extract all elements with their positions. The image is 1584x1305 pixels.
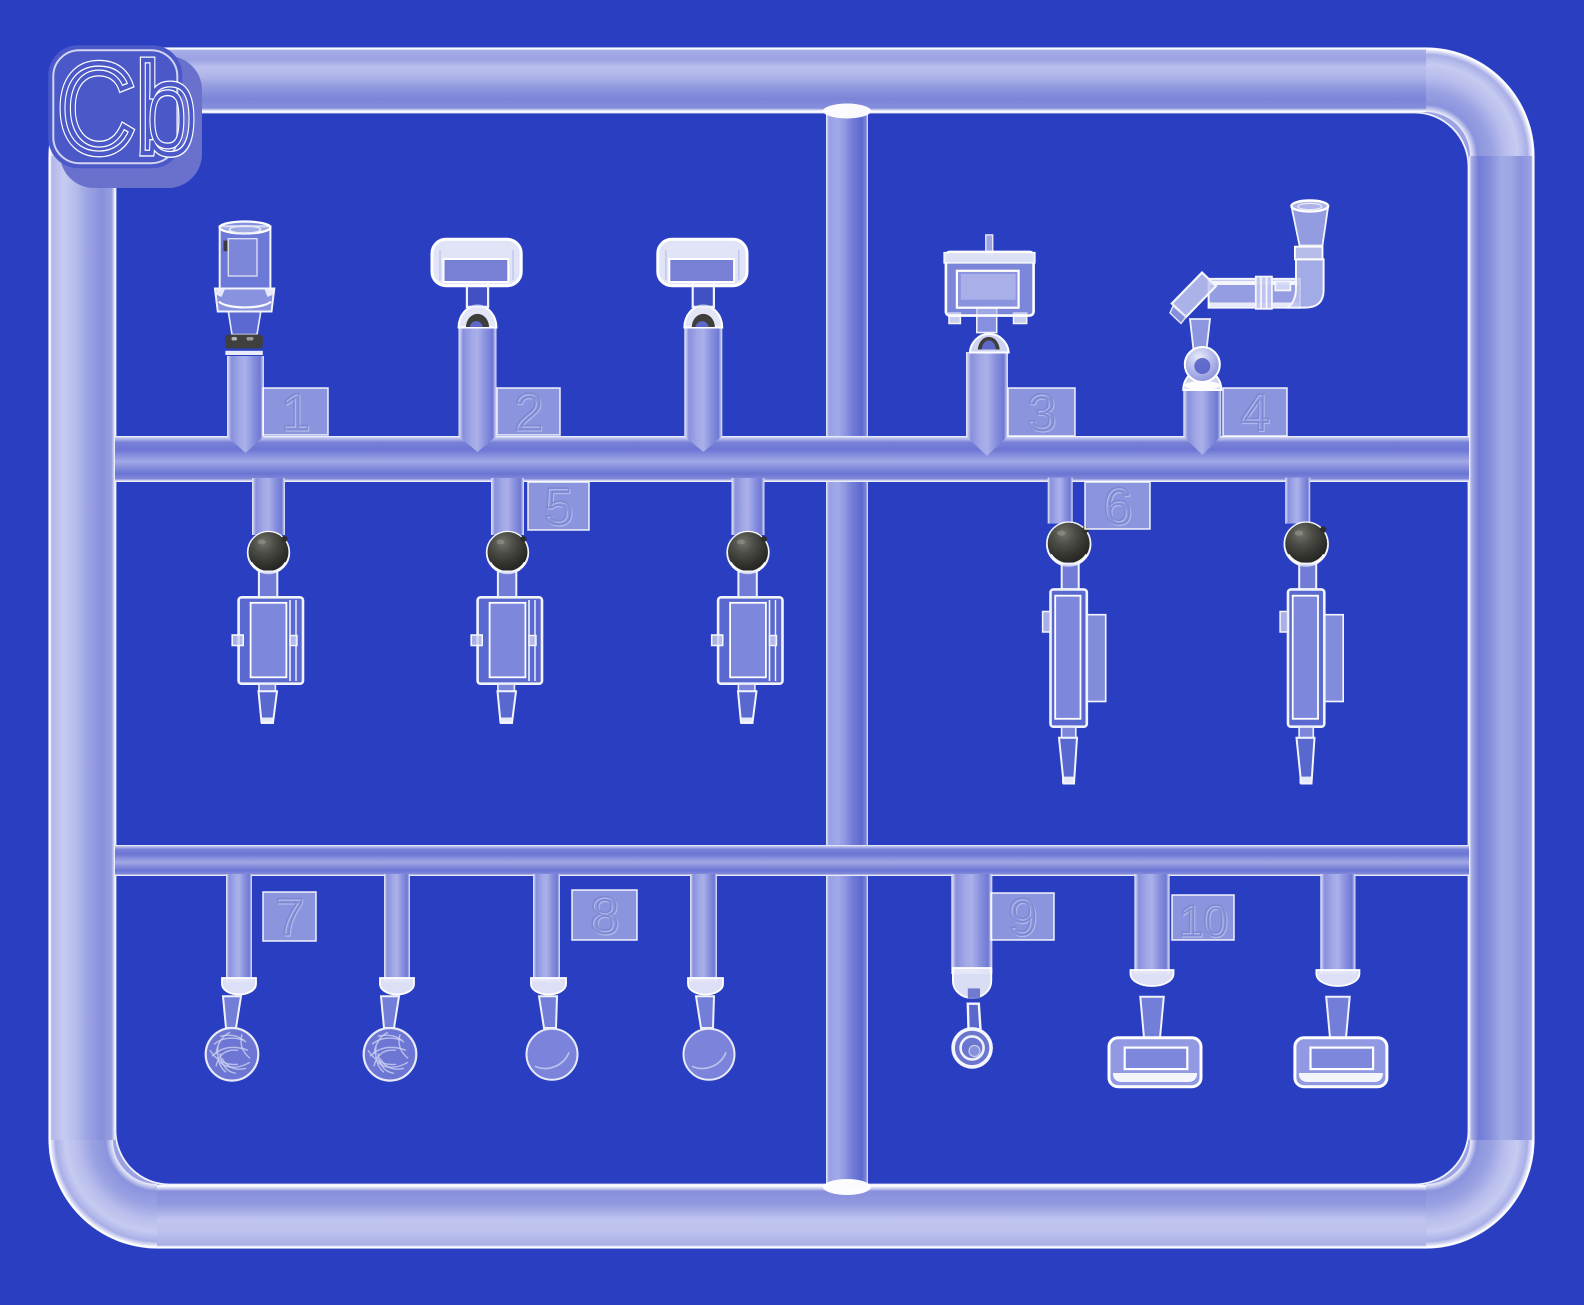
svg-text:7: 7 [275, 889, 304, 947]
svg-text:4: 4 [1241, 384, 1270, 442]
svg-text:10: 10 [1179, 897, 1228, 946]
svg-text:5: 5 [544, 478, 573, 536]
svg-text:6: 6 [1103, 478, 1132, 536]
svg-text:3: 3 [1027, 384, 1056, 442]
svg-text:Cb: Cb [57, 38, 196, 181]
svg-text:8: 8 [590, 887, 619, 945]
svg-text:1: 1 [281, 384, 310, 442]
svg-text:2: 2 [514, 384, 543, 442]
svg-text:9: 9 [1008, 889, 1037, 947]
